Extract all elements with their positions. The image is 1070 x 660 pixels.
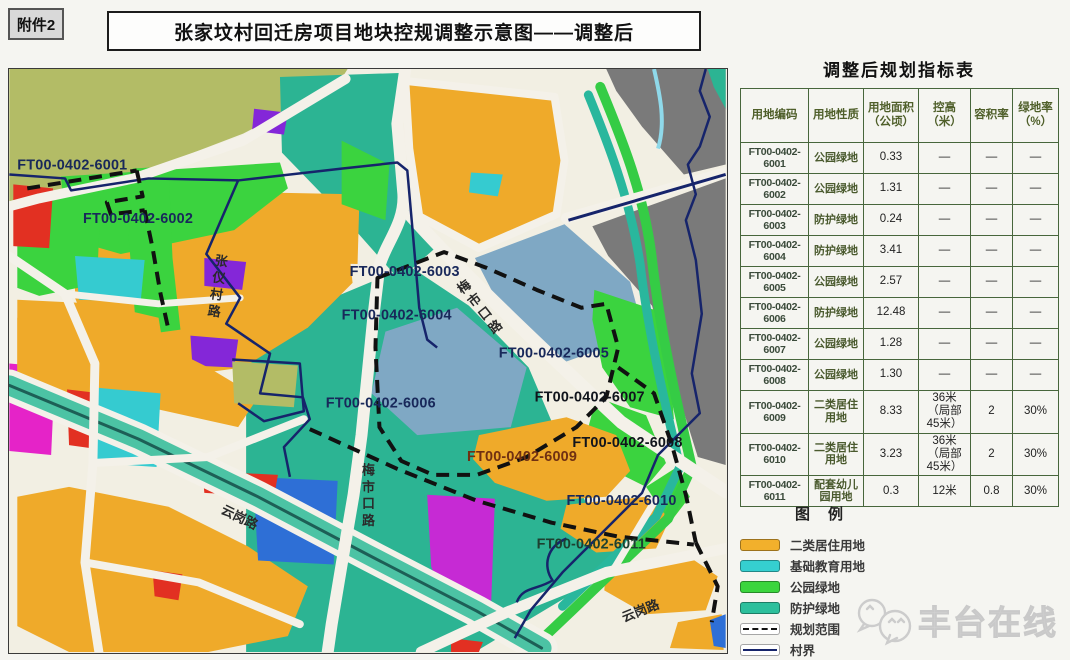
- table-cell: 30%: [1013, 433, 1059, 476]
- table-cell: —: [1013, 360, 1059, 391]
- page-title: 张家坟村回迁房项目地块控规调整示意图——调整后: [107, 11, 701, 51]
- table-cell: 30%: [1013, 391, 1059, 434]
- table-cell: 3.23: [864, 433, 919, 476]
- table-cell: —: [971, 174, 1013, 205]
- legend-label: 规划范围: [790, 619, 840, 638]
- legend-title: 图例: [795, 503, 1040, 524]
- road-name-label: 梅市口路: [360, 462, 375, 530]
- table-cell: —: [919, 298, 971, 329]
- table-cell: —: [1013, 298, 1059, 329]
- table-cell: 1.28: [864, 329, 919, 360]
- table-row: FT00-0402-6004防护绿地3.41———: [741, 236, 1059, 267]
- table-cell: —: [919, 143, 971, 174]
- watermark: 丰台在线: [852, 590, 1067, 650]
- table-header-cell: 用地性质: [809, 89, 864, 143]
- plot-label: FT00-0402-6002: [83, 211, 193, 227]
- legend-label: 村界: [790, 640, 815, 659]
- legend-label: 公园绿地: [790, 577, 840, 596]
- legend-label: 基础教育用地: [790, 556, 865, 575]
- plot-label: FT00-0402-6003: [350, 264, 460, 280]
- table-cell: —: [971, 267, 1013, 298]
- table-cell: FT00-0402-6004: [741, 236, 809, 267]
- planning-indicator-table: 用地编码用地性质用地面积（公顷）控高（米）容积率绿地率（%） FT00-0402…: [740, 88, 1059, 507]
- table-cell: FT00-0402-6005: [741, 267, 809, 298]
- table-cell: —: [971, 205, 1013, 236]
- table-cell: 1.31: [864, 174, 919, 205]
- plot-label: FT00-0402-6011: [537, 537, 646, 553]
- table-cell: 0.24: [864, 205, 919, 236]
- table-cell: —: [919, 267, 971, 298]
- table-cell: 2.57: [864, 267, 919, 298]
- legend-label: 二类居住用地: [790, 535, 865, 554]
- plot-label: FT00-0402-6001: [17, 157, 127, 173]
- table-cell: —: [919, 360, 971, 391]
- table-cell: —: [1013, 174, 1059, 205]
- table-header-cell: 绿地率（%）: [1013, 89, 1059, 143]
- legend-label: 防护绿地: [790, 598, 840, 617]
- plot-label: FT00-0402-6009: [467, 449, 577, 465]
- table-cell: 公园绿地: [809, 174, 864, 205]
- table-cell: —: [919, 205, 971, 236]
- table-cell: 防护绿地: [809, 298, 864, 329]
- table-cell: 2: [971, 391, 1013, 434]
- table-cell: —: [919, 329, 971, 360]
- table-row: FT00-0402-6003防护绿地0.24———: [741, 205, 1059, 236]
- table-cell: —: [971, 298, 1013, 329]
- table-cell: 36米（局部45米）: [919, 391, 971, 434]
- table-cell: 公园绿地: [809, 329, 864, 360]
- wechat-icon: [852, 593, 918, 647]
- table-cell: 2: [971, 433, 1013, 476]
- table-cell: —: [971, 143, 1013, 174]
- table-cell: 防护绿地: [809, 236, 864, 267]
- table-row: FT00-0402-6001公园绿地0.33———: [741, 143, 1059, 174]
- map-canvas: 张仪村路梅市口路梅市口路云岗路云岗路 FT00-0402-6001FT00-04…: [9, 69, 726, 652]
- table-cell: FT00-0402-6003: [741, 205, 809, 236]
- table-cell: 公园绿地: [809, 267, 864, 298]
- table-cell: 36米（局部45米）: [919, 433, 971, 476]
- legend-swatch-fill: [740, 602, 780, 614]
- table-row: FT00-0402-6006防护绿地12.48———: [741, 298, 1059, 329]
- table-cell: 二类居住用地: [809, 391, 864, 434]
- table-cell: —: [919, 174, 971, 205]
- table-cell: FT00-0402-6007: [741, 329, 809, 360]
- plot-label: FT00-0402-6008: [572, 435, 682, 451]
- table-cell: 0.33: [864, 143, 919, 174]
- plot-label: FT00-0402-6007: [535, 389, 645, 405]
- table-header-cell: 用地编码: [741, 89, 809, 143]
- plot-label: FT00-0402-6005: [499, 346, 609, 362]
- table-cell: —: [1013, 329, 1059, 360]
- table-row: FT00-0402-6002公园绿地1.31———: [741, 174, 1059, 205]
- table-cell: 公园绿地: [809, 360, 864, 391]
- table-row: FT00-0402-6009二类居住用地8.3336米（局部45米）230%: [741, 391, 1059, 434]
- legend-swatch-fill: [740, 581, 780, 593]
- table-cell: —: [971, 360, 1013, 391]
- land-use-map: 张仪村路梅市口路梅市口路云岗路云岗路 FT00-0402-6001FT00-04…: [8, 68, 728, 654]
- table-row: FT00-0402-6010二类居住用地3.2336米（局部45米）230%: [741, 433, 1059, 476]
- table-cell: 8.33: [864, 391, 919, 434]
- plot-label: FT00-0402-6004: [342, 308, 452, 324]
- plot-label: FT00-0402-6010: [566, 493, 676, 509]
- watermark-text: 丰台在线: [918, 596, 1058, 644]
- table-cell: 公园绿地: [809, 143, 864, 174]
- table-cell: 1.30: [864, 360, 919, 391]
- table-cell: 二类居住用地: [809, 433, 864, 476]
- table-cell: FT00-0402-6002: [741, 174, 809, 205]
- table-cell: 12.48: [864, 298, 919, 329]
- table-cell: —: [1013, 267, 1059, 298]
- table-cell: —: [1013, 143, 1059, 174]
- legend-swatch-fill: [740, 539, 780, 551]
- table-cell: FT00-0402-6009: [741, 391, 809, 434]
- table-cell: —: [971, 236, 1013, 267]
- attachment-label: 附件2: [8, 8, 64, 40]
- table-cell: 3.41: [864, 236, 919, 267]
- plot-label: FT00-0402-6006: [326, 395, 436, 411]
- table-cell: FT00-0402-6010: [741, 433, 809, 476]
- table-cell: —: [971, 329, 1013, 360]
- table-header-cell: 用地面积（公顷）: [864, 89, 919, 143]
- legend-swatch-dashed-line: [740, 623, 780, 635]
- legend-item: 二类居住用地: [740, 534, 1040, 555]
- table-cell: —: [1013, 236, 1059, 267]
- table-cell: 防护绿地: [809, 205, 864, 236]
- table-cell: FT00-0402-6006: [741, 298, 809, 329]
- table-row: FT00-0402-6007公园绿地1.28———: [741, 329, 1059, 360]
- table-header-cell: 控高（米）: [919, 89, 971, 143]
- table-row: FT00-0402-6005公园绿地2.57———: [741, 267, 1059, 298]
- table-header-row: 用地编码用地性质用地面积（公顷）控高（米）容积率绿地率（%）: [741, 89, 1059, 143]
- table-cell: —: [919, 236, 971, 267]
- page: { "page": { "attachment_label": "附件2", "…: [0, 0, 1070, 654]
- table-title: 调整后规划指标表: [740, 56, 1058, 81]
- legend-item: 基础教育用地: [740, 555, 1040, 576]
- table-cell: FT00-0402-6001: [741, 143, 809, 174]
- table-header-cell: 容积率: [971, 89, 1013, 143]
- table-cell: —: [1013, 205, 1059, 236]
- legend-swatch-fill: [740, 560, 780, 572]
- table-row: FT00-0402-6008公园绿地1.30———: [741, 360, 1059, 391]
- table-cell: FT00-0402-6008: [741, 360, 809, 391]
